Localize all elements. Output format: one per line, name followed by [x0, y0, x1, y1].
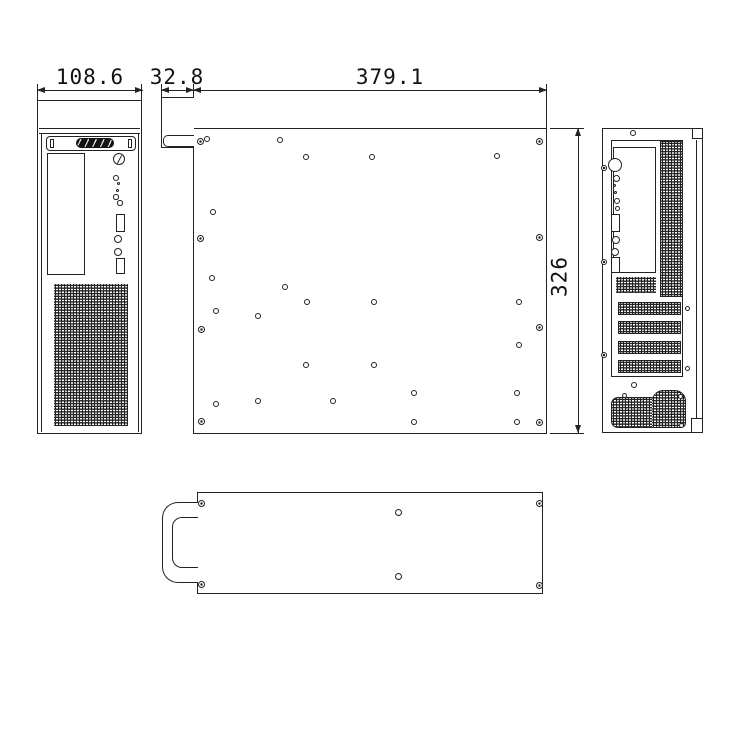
audio-jack [114, 248, 122, 256]
screw-hole [536, 500, 543, 507]
audio-jack [114, 235, 122, 243]
rear-port-round [608, 158, 622, 172]
screw-hole [198, 581, 205, 588]
mounting-hole [630, 130, 636, 136]
led-indicator [117, 200, 123, 206]
mounting-hole [213, 401, 219, 407]
rear-vent-grille [660, 141, 683, 297]
mounting-hole [255, 313, 261, 319]
mounting-hole [369, 154, 375, 160]
dim-line [578, 128, 579, 433]
drive-bay-door [47, 153, 85, 275]
dim-arrow [37, 87, 45, 93]
mounting-hole [411, 419, 417, 425]
front-face-right-line [138, 133, 139, 432]
usb-port [116, 214, 125, 232]
screw-hole [198, 500, 205, 507]
dim-arrow [161, 87, 169, 93]
extension-line [37, 84, 38, 100]
rear-port-small [614, 198, 620, 204]
rear-usb-port [611, 214, 620, 232]
dim-label-front-width: 108.6 [54, 67, 126, 88]
mounting-hole [395, 573, 402, 580]
extension-line [546, 84, 547, 128]
rear-small-vent [616, 277, 656, 293]
mounting-hole [371, 299, 377, 305]
screw-hole [197, 138, 204, 145]
mounting-hole [395, 509, 402, 516]
rear-audio-jack [611, 248, 619, 256]
mounting-hole [631, 382, 637, 388]
expansion-slot-vent [618, 360, 681, 373]
screw-hole [601, 352, 607, 358]
screw-hole [601, 165, 607, 171]
usb-port [116, 258, 125, 274]
mounting-hole [679, 423, 684, 428]
screw-hole [536, 324, 543, 331]
mounting-hole [494, 153, 500, 159]
front-vent-grille [54, 284, 128, 426]
front-face-left-line [41, 133, 42, 432]
mounting-hole [685, 366, 690, 371]
mounting-hole [371, 362, 377, 368]
mounting-hole [516, 299, 522, 305]
mounting-hole [685, 306, 690, 311]
mounting-hole [304, 299, 310, 305]
led-indicator [116, 189, 119, 192]
screw-hole [197, 235, 204, 242]
dim-line [37, 90, 143, 91]
mounting-hole [516, 342, 522, 348]
front-top-band-line [39, 128, 140, 129]
dim-line [193, 90, 547, 91]
led-indicator [113, 175, 119, 181]
rear-usb-port [611, 257, 620, 273]
mounting-hole [411, 390, 417, 396]
screw-hole [198, 326, 205, 333]
dim-arrow [575, 425, 581, 433]
rear-port-small [615, 206, 620, 211]
screw-hole [536, 419, 543, 426]
mounting-hole [277, 137, 283, 143]
power-slash-icon [117, 155, 122, 164]
mounting-hole [204, 136, 210, 142]
led-indicator [113, 194, 119, 200]
dim-label-body-height: 326 [550, 253, 571, 301]
mounting-hole [209, 275, 215, 281]
screw-hole [601, 259, 607, 265]
dim-arrow [575, 128, 581, 136]
dim-label-body-length: 379.1 [348, 67, 432, 88]
slot-end-cap-right [128, 139, 132, 148]
rear-port-small [614, 191, 617, 194]
side-view-outline [193, 128, 547, 434]
mounting-hole [678, 394, 683, 399]
rear-port-small [613, 175, 620, 182]
rear-port-small [613, 184, 616, 187]
extension-line [161, 84, 162, 98]
mounting-hole [303, 154, 309, 160]
mounting-hole [255, 398, 261, 404]
led-indicator [117, 182, 120, 185]
rear-top-notch [692, 128, 703, 139]
expansion-slot-vent [618, 341, 681, 354]
screw-hole [198, 418, 205, 425]
dim-label-handle-depth: 32.8 [146, 67, 208, 88]
front-face-top-line [39, 133, 140, 134]
slot-end-cap-left [50, 139, 54, 148]
screw-hole [536, 234, 543, 241]
rear-side-edge-line [696, 140, 697, 418]
mounting-hole [514, 390, 520, 396]
mounting-hole [514, 419, 520, 425]
expansion-slot-vent [618, 302, 681, 315]
extension-line [550, 433, 584, 434]
extension-line [141, 84, 142, 100]
extension-line [550, 128, 584, 129]
mounting-hole [282, 284, 288, 290]
power-button-icon [113, 153, 125, 165]
bottom-view-outline [197, 492, 543, 594]
screw-hole [536, 138, 543, 145]
dim-arrow [193, 87, 201, 93]
rear-bottom-step [691, 418, 703, 433]
mounting-hole [303, 362, 309, 368]
brand-logo [76, 138, 114, 148]
technical-drawing-canvas: 108.6 32.8 379.1 326 [0, 0, 750, 750]
mounting-hole [330, 398, 336, 404]
expansion-slot-vent [618, 321, 681, 334]
rear-audio-jack [612, 236, 620, 244]
bottom-handle-inner [172, 517, 198, 568]
side-handle-grip [163, 135, 194, 147]
mounting-hole [622, 393, 627, 398]
mounting-hole [210, 209, 216, 215]
screw-hole [536, 582, 543, 589]
mounting-hole [213, 308, 219, 314]
